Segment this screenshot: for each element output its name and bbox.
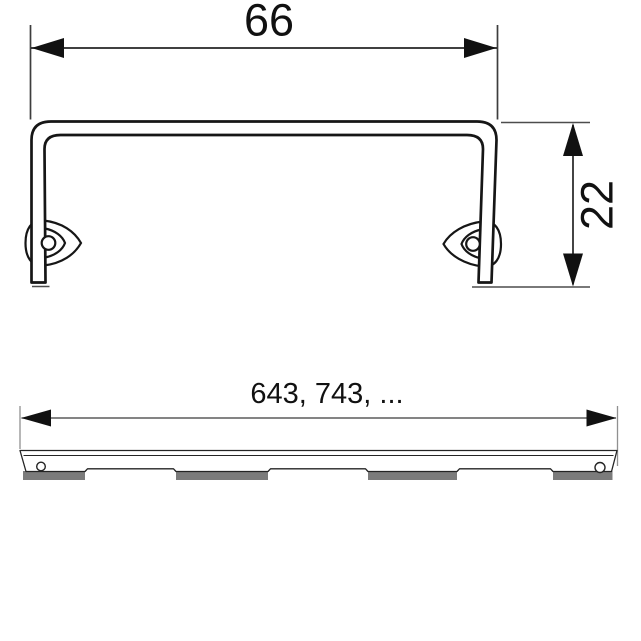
arrowhead-down-icon (563, 254, 583, 287)
profile-foot-1 (23, 471, 85, 480)
length-dimension-label: 643, 743, ... (250, 378, 403, 410)
arrowhead-up-icon (563, 123, 583, 156)
profile-body-outline (20, 451, 617, 472)
profile-foot-4 (553, 471, 613, 480)
arrowhead-right-icon (587, 410, 617, 427)
arrowhead-left-icon (32, 38, 65, 58)
profile-hole-left (37, 462, 46, 471)
profile-foot-3 (368, 471, 457, 480)
grate-bracket-outline (32, 122, 497, 283)
drain-grate-dimension-drawing: 66 22 (0, 0, 641, 641)
profile-hole-right (595, 463, 605, 473)
profile-feet (23, 471, 613, 480)
height-dimension-label: 22 (572, 180, 623, 230)
cross-section-view: 66 22 (26, 0, 623, 287)
width-dimension-label: 66 (244, 0, 294, 46)
side-profile-view: 643, 743, ... (20, 378, 618, 480)
technical-drawing-page: 66 22 (0, 0, 641, 641)
profile-foot-2 (176, 471, 268, 480)
right-eyelet-hole (466, 237, 480, 251)
width-dimension: 66 (31, 0, 498, 120)
left-eyelet-hole (42, 236, 56, 250)
arrowhead-left-icon (21, 410, 51, 427)
arrowhead-right-icon (464, 38, 497, 58)
